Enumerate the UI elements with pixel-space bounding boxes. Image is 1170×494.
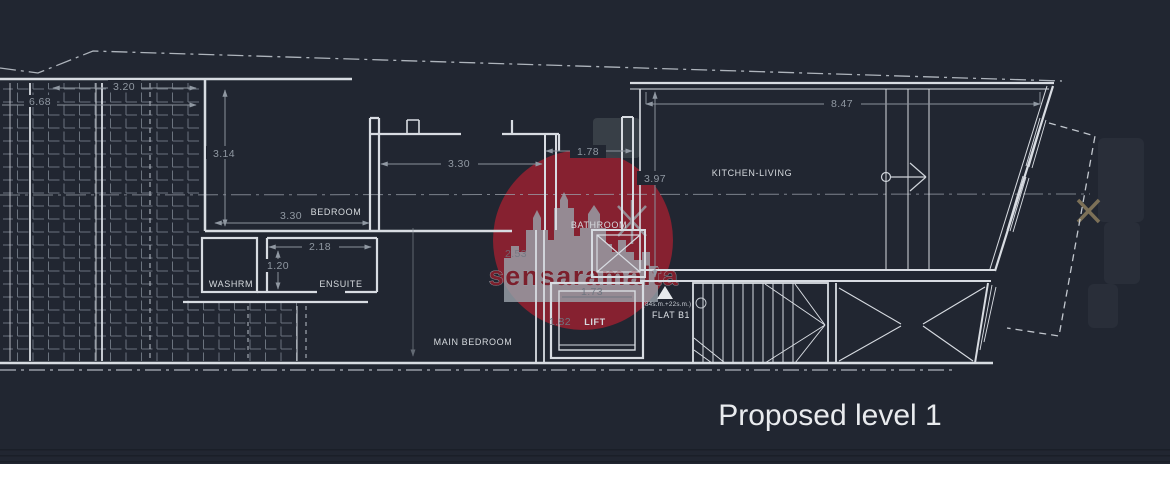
dim-ensuite-width: 2.18 [309,241,331,253]
room-label-bedroom: BEDROOM [311,207,362,217]
dim-site-width: 6.68 [29,96,51,108]
dim-bathroom-width: 1.78 [577,146,599,158]
balcony-dashed-outline [1007,123,1095,336]
room-label-kitchen-living: KITCHEN-LIVING [712,168,792,178]
bottom-banding [0,449,1170,463]
room-label-main-bedroom: MAIN BEDROOM [434,337,513,347]
drawing-title: Proposed level 1 [718,399,941,432]
entry-arrow-symbol [882,163,927,191]
dim-kitchen-width: 8.47 [831,98,853,110]
flat-circle-tag [696,298,706,308]
stair-walls [693,283,828,363]
hatch-area [3,83,306,361]
dim-lift-depth: 1.82 [549,316,571,328]
void-x-room [836,283,996,363]
flat-area-note: (84s.m.+22s.m.) [643,301,692,308]
dim-bedroom-width: 3.30 [280,210,302,222]
dim-lift-width: 1.73 [581,286,603,298]
site-boundary-top [0,51,1062,81]
room-label-bathroom: BATHROOM [571,220,627,230]
floor-plan-drawing: sensaramalta [0,0,1170,464]
screenshot-page: sensaramalta [0,0,1170,494]
dim-roof-width: 3.20 [113,81,135,93]
right-smudge-blobs [1088,138,1144,328]
room-label-lift: LIFT [584,317,605,327]
flat-label: FLAT B1 [652,310,690,320]
cad-canvas: sensaramalta [0,0,1170,464]
dim-kitchen-depth: 3.97 [644,173,666,185]
dim-ensuite-depth: 1.20 [267,260,289,272]
dim-hall-width: 3.30 [448,158,470,170]
slanted-window-wall [990,86,1053,271]
room-label-ensuite: ENSUITE [319,279,362,289]
dim-bedroom-depth: 3.14 [213,148,235,160]
kitchen-walls [630,83,1054,281]
room-label-washroom: WASHRM [209,279,253,289]
dim-bathroom-depth: 2.53 [505,248,527,260]
